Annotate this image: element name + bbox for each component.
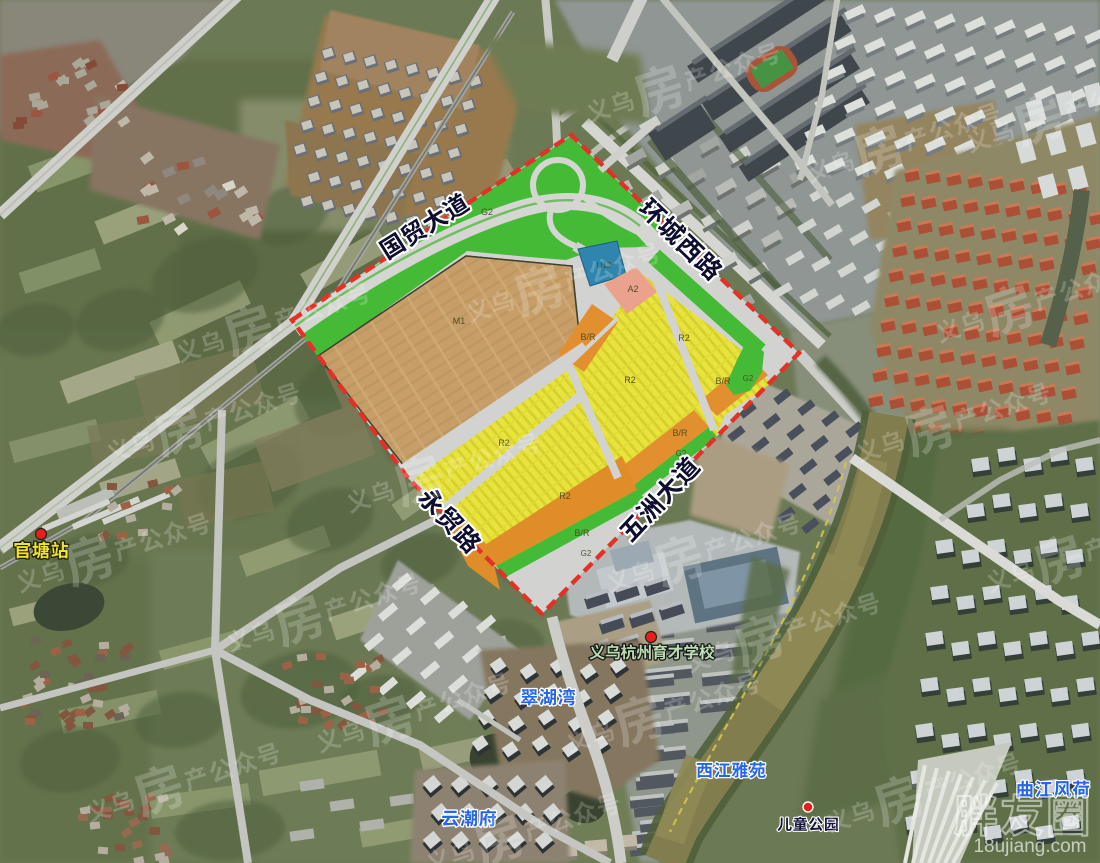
svg-text:R2: R2 xyxy=(559,491,571,501)
svg-text:R2: R2 xyxy=(624,375,636,385)
svg-text:B/R: B/R xyxy=(574,528,590,538)
svg-text:B/R: B/R xyxy=(672,428,688,438)
svg-text:G2: G2 xyxy=(481,207,493,217)
svg-text:A2: A2 xyxy=(627,284,638,294)
svg-text:G2: G2 xyxy=(581,549,592,558)
svg-text:B/R: B/R xyxy=(715,376,731,386)
svg-text:18ujiang.com: 18ujiang.com xyxy=(973,836,1086,857)
svg-text:R2: R2 xyxy=(678,333,690,343)
svg-text:G2: G2 xyxy=(743,374,754,383)
svg-text:M1: M1 xyxy=(453,316,466,326)
svg-text:B/R: B/R xyxy=(580,332,596,342)
